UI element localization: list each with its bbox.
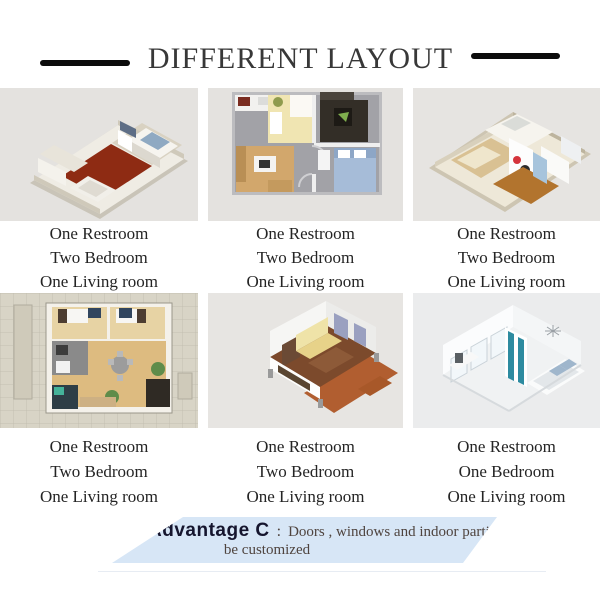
layout-card-5: One Restroom Two Bedroom One Living room xyxy=(208,293,403,509)
caption-bedroom: One Bedroom xyxy=(413,459,600,484)
layout-card-6: One Restroom One Bedroom One Living room xyxy=(413,293,600,509)
page-title: DIFFERENT LAYOUT xyxy=(148,42,453,76)
floorplan-image-white-bedroom xyxy=(413,293,600,428)
floorplan-image-module-deck xyxy=(208,293,403,428)
caption-livingroom: One Living room xyxy=(208,270,403,294)
layout-card-4: One Restroom Two Bedroom One Living room xyxy=(0,293,198,509)
advantage-line1: Advantage C : Doors , windows and indoor… xyxy=(148,520,538,542)
floorplan-image-red-floor xyxy=(0,88,198,221)
advantage-label: Advantage C xyxy=(148,520,270,541)
caption-block: One Restroom Two Bedroom One Living room xyxy=(0,221,198,294)
floorplan-image-kids-room xyxy=(413,88,600,221)
footer-divider xyxy=(98,571,546,572)
caption-restroom: One Restroom xyxy=(208,434,403,459)
floorplan-image-tiled-patio xyxy=(0,293,198,428)
layout-grid-top: One Restroom Two Bedroom One Living room xyxy=(0,88,600,294)
caption-block: One Restroom One Bedroom One Living room xyxy=(413,428,600,509)
layout-card-2: One Restroom Two Bedroom One Living room xyxy=(208,88,403,294)
caption-restroom: One Restroom xyxy=(208,222,403,246)
advantage-line2: be customized xyxy=(187,542,347,559)
layout-card-1: One Restroom Two Bedroom One Living room xyxy=(0,88,198,294)
header: DIFFERENT LAYOUT xyxy=(0,36,600,82)
title-rule-left xyxy=(40,60,130,66)
caption-livingroom: One Living room xyxy=(413,270,600,294)
layout-grid-bottom: One Restroom Two Bedroom One Living room xyxy=(0,293,600,509)
title-rule-right xyxy=(471,53,560,59)
caption-block: One Restroom Two Bedroom One Living room xyxy=(0,428,198,509)
caption-restroom: One Restroom xyxy=(0,434,198,459)
caption-livingroom: One Living room xyxy=(208,484,403,509)
caption-restroom: One Restroom xyxy=(0,222,198,246)
caption-bedroom: Two Bedroom xyxy=(208,246,403,270)
caption-restroom: One Restroom xyxy=(413,434,600,459)
caption-livingroom: One Living room xyxy=(0,270,198,294)
caption-livingroom: One Living room xyxy=(0,484,198,509)
advantage-colon: : xyxy=(274,523,284,540)
floorplan-image-2d-plan xyxy=(208,88,403,221)
caption-block: One Restroom Two Bedroom One Living room xyxy=(208,428,403,509)
advantage-banner: Advantage C : Doors , windows and indoor… xyxy=(112,517,497,563)
caption-bedroom: Two Bedroom xyxy=(208,459,403,484)
advantage-text: Doors , windows and indoor partition can xyxy=(288,524,538,540)
caption-bedroom: Two Bedroom xyxy=(0,246,198,270)
caption-restroom: One Restroom xyxy=(413,222,600,246)
product-layout-page: DIFFERENT LAYOUT xyxy=(0,0,600,600)
caption-bedroom: Two Bedroom xyxy=(0,459,198,484)
layout-card-3: One Restroom Two Bedroom One Living room xyxy=(413,88,600,294)
caption-block: One Restroom Two Bedroom One Living room xyxy=(413,221,600,294)
caption-bedroom: Two Bedroom xyxy=(413,246,600,270)
caption-livingroom: One Living room xyxy=(413,484,600,509)
caption-block: One Restroom Two Bedroom One Living room xyxy=(208,221,403,294)
